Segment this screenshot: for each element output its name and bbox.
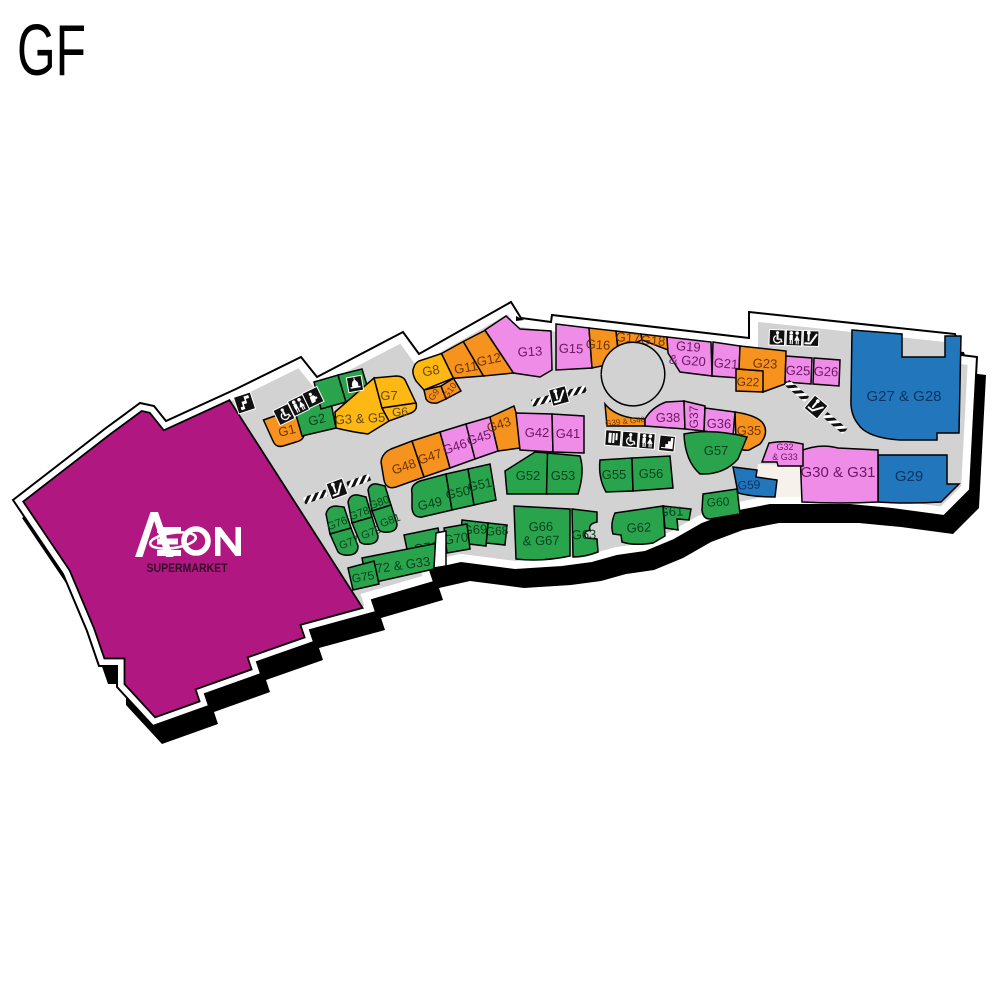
svg-text:G26: G26 — [813, 364, 838, 380]
svg-text:G22: G22 — [736, 375, 759, 390]
svg-text:G7: G7 — [380, 388, 397, 403]
svg-text:G29: G29 — [895, 468, 923, 485]
svg-text:& G33: & G33 — [772, 452, 798, 462]
svg-text:& G67: & G67 — [523, 533, 560, 549]
svg-text:G52: G52 — [516, 468, 541, 483]
svg-text:G59: G59 — [737, 477, 761, 492]
svg-text:G27 & G28: G27 & G28 — [866, 388, 941, 405]
svg-text:G36: G36 — [706, 416, 731, 432]
svg-text:G32: G32 — [776, 442, 793, 452]
svg-text:SUPERMARKET: SUPERMARKET — [147, 561, 229, 575]
svg-text:G15: G15 — [558, 341, 583, 357]
svg-text:G62: G62 — [626, 519, 651, 535]
svg-text:G53: G53 — [551, 468, 576, 483]
svg-text:G6: G6 — [392, 405, 409, 420]
svg-text:G60: G60 — [706, 494, 730, 509]
svg-text:G37: G37 — [687, 405, 701, 428]
svg-text:G23: G23 — [752, 355, 777, 371]
svg-text:G56: G56 — [639, 466, 664, 481]
svg-text:G68: G68 — [485, 523, 509, 538]
svg-text:G42: G42 — [525, 425, 550, 440]
svg-text:G57: G57 — [704, 443, 729, 458]
svg-text:G38: G38 — [656, 410, 681, 425]
svg-text:G30 & G31: G30 & G31 — [800, 464, 875, 481]
svg-text:G8: G8 — [421, 362, 441, 380]
svg-text:G3 & G5: G3 & G5 — [334, 410, 385, 428]
svg-text:G55: G55 — [602, 467, 627, 482]
svg-text:G41: G41 — [556, 426, 581, 441]
svg-text:G25: G25 — [785, 363, 810, 379]
svg-text:G13: G13 — [517, 343, 542, 359]
svg-text:GF: GF — [17, 11, 86, 91]
svg-text:G63: G63 — [571, 527, 596, 543]
svg-text:G21: G21 — [713, 355, 739, 372]
svg-text:G16: G16 — [585, 336, 611, 353]
svg-text:& G20: & G20 — [668, 352, 706, 370]
